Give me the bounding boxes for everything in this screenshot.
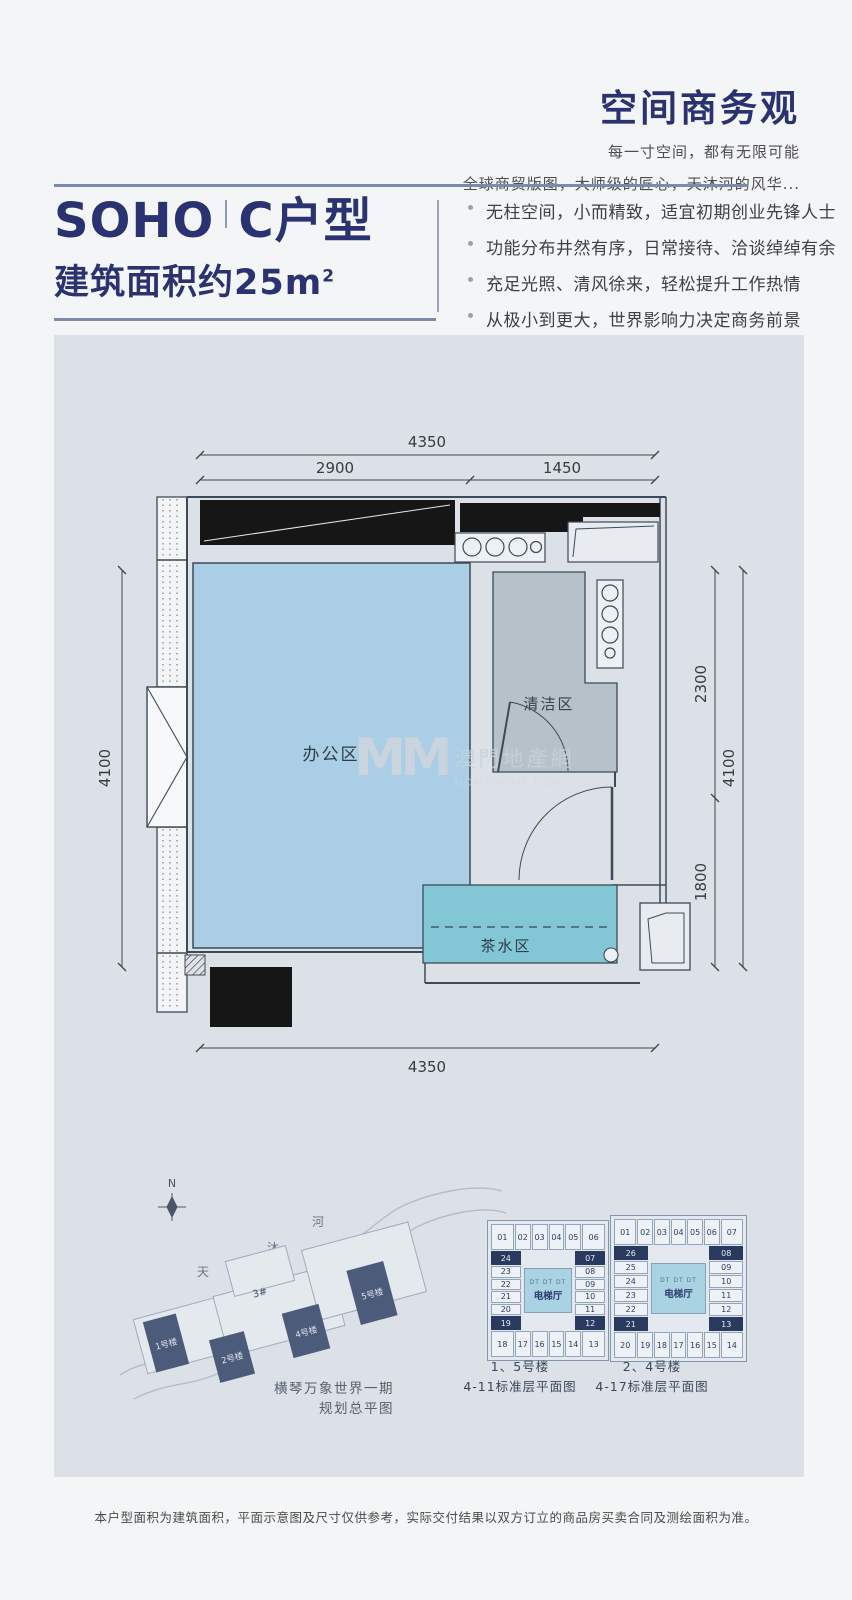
curtain-wall bbox=[147, 497, 187, 1012]
plate-right-column: 09101112 bbox=[709, 1261, 743, 1316]
unit-cell: 23 bbox=[491, 1266, 521, 1278]
unit-cell: 15 bbox=[549, 1331, 565, 1357]
drain-circle-icon bbox=[604, 948, 618, 962]
unit-cell: 20 bbox=[614, 1332, 636, 1358]
dim-bottom-total: 4350 bbox=[408, 1058, 446, 1076]
unit-cell: 11 bbox=[575, 1304, 605, 1316]
unit-cell: 05 bbox=[687, 1219, 703, 1245]
elevator-hall: DT DT DT电梯厅 bbox=[524, 1268, 573, 1313]
bullet-icon bbox=[468, 241, 473, 246]
siteplan-caption-1: 横琴万象世界一期 bbox=[274, 1381, 394, 1397]
unit-cell: 01 bbox=[491, 1224, 514, 1250]
unit-cell: 23 bbox=[614, 1289, 648, 1302]
unit-cell: 17 bbox=[671, 1332, 687, 1358]
plate-lower-corners: 2113 bbox=[614, 1317, 743, 1331]
cleaning-area-label: 清洁区 bbox=[523, 695, 574, 713]
door-swing-entry bbox=[519, 772, 615, 880]
tea-area-label: 茶水区 bbox=[480, 937, 531, 955]
unit-cell: 04 bbox=[549, 1224, 565, 1250]
unit-cell: 08 bbox=[709, 1246, 743, 1260]
unit-cell: 09 bbox=[575, 1279, 605, 1291]
unit-cell: 21 bbox=[614, 1317, 648, 1331]
elevator-hall-label: 电梯厅 bbox=[664, 1286, 693, 1300]
dim-right-total: 4100 bbox=[720, 749, 738, 787]
fixture-column-icon bbox=[597, 580, 623, 668]
plate-right-column: 08091011 bbox=[575, 1266, 605, 1315]
unit-title-cn: C户型 bbox=[238, 196, 372, 246]
unit-cell: 06 bbox=[704, 1219, 720, 1245]
wall-band-top-right bbox=[460, 503, 660, 517]
unit-cell: 10 bbox=[709, 1275, 743, 1288]
unit-cell: 22 bbox=[614, 1303, 648, 1316]
bullet-icon bbox=[468, 205, 473, 210]
header: 空间商务观 每一寸空间，都有无限可能 全球商贸版图，大师级的匠心，天沐河的风华.… bbox=[463, 78, 800, 197]
unit-cell: 02 bbox=[637, 1219, 653, 1245]
unit-cell: 08 bbox=[575, 1266, 605, 1278]
river-char-1: 天 bbox=[197, 1265, 209, 1279]
shaft-block-icon bbox=[640, 903, 690, 970]
unit-cell: 16 bbox=[532, 1331, 548, 1357]
feature-item: 无柱空间，小而精致，适宜初期创业先锋人士 bbox=[468, 198, 836, 223]
office-area-label: 办公区 bbox=[303, 745, 360, 765]
floorplan-panel: 4350 2900 1450 bbox=[54, 335, 804, 1477]
plate-bottom-row: 20191817161514 bbox=[614, 1332, 743, 1358]
unit-cell: 05 bbox=[565, 1224, 581, 1250]
unit-cell: 14 bbox=[565, 1331, 581, 1357]
unit-cell: 26 bbox=[614, 1246, 648, 1260]
unit-cell: 18 bbox=[654, 1332, 670, 1358]
unit-cell: 25 bbox=[614, 1261, 648, 1274]
wall-band-top-right-2 bbox=[460, 517, 583, 532]
unit-cell: 02 bbox=[515, 1224, 531, 1250]
hatched-pier bbox=[185, 955, 205, 975]
unit-cell: 24 bbox=[491, 1251, 521, 1265]
unit-title-en: SOHO bbox=[54, 196, 214, 246]
plate-middle-row: 25242322DT DT DT电梯厅09101112 bbox=[614, 1261, 743, 1316]
unit-cell: 18 bbox=[491, 1331, 514, 1357]
unit-cell: 04 bbox=[671, 1219, 687, 1245]
unit-title: SOHO C户型 bbox=[54, 196, 434, 246]
unit-cell: 15 bbox=[704, 1332, 720, 1358]
unit-cell: 01 bbox=[614, 1219, 636, 1245]
title-underline bbox=[54, 318, 436, 321]
elevator-hall-label: 电梯厅 bbox=[534, 1288, 563, 1302]
unit-area: 建筑面积约25m2 bbox=[54, 254, 434, 305]
plate-middle-row: 23222120DT DT DT电梯厅08091011 bbox=[491, 1266, 605, 1315]
plate-top-row: 01020304050607 bbox=[614, 1219, 743, 1245]
feature-item: 充足光照、清风徐来，轻松提升工作热情 bbox=[468, 270, 836, 295]
cabinet-icon bbox=[568, 522, 658, 562]
unit-cell: 11 bbox=[709, 1289, 743, 1302]
unit-cell: 03 bbox=[654, 1219, 670, 1245]
unit-cell: 24 bbox=[614, 1275, 648, 1288]
dimension-left bbox=[118, 566, 126, 971]
unit-cell: 12 bbox=[575, 1316, 605, 1330]
openable-window-icon bbox=[147, 687, 187, 827]
title-vertical-divider bbox=[437, 200, 439, 312]
dimension-top bbox=[196, 451, 659, 484]
dim-top-total: 4350 bbox=[408, 433, 446, 451]
bullet-icon bbox=[468, 313, 473, 318]
unit-cell: 13 bbox=[582, 1331, 605, 1357]
plate-upper-corners: 2407 bbox=[491, 1251, 605, 1265]
title-tick-divider bbox=[225, 200, 227, 228]
plate-left-column: 25242322 bbox=[614, 1261, 648, 1316]
counter-burners-icon bbox=[455, 533, 545, 562]
plate-left-column: 23222120 bbox=[491, 1266, 521, 1315]
unit-cell: 07 bbox=[575, 1251, 605, 1265]
header-title: 空间商务观 bbox=[463, 78, 800, 132]
plate-upper-corners: 2608 bbox=[614, 1246, 743, 1260]
elevator-hall: DT DT DT电梯厅 bbox=[651, 1263, 707, 1314]
elevator-shaft-label: DT DT DT bbox=[660, 1277, 697, 1284]
siteplan-caption-2: 规划总平图 bbox=[319, 1401, 394, 1417]
dim-top-left: 2900 bbox=[316, 459, 354, 477]
unit-cell: 12 bbox=[709, 1303, 743, 1316]
dim-left: 4100 bbox=[96, 749, 114, 787]
unit-cell: 06 bbox=[582, 1224, 605, 1250]
elevator-shaft-label: DT DT DT bbox=[530, 1279, 567, 1286]
unit-cell: 19 bbox=[491, 1316, 521, 1330]
unit-cell: 14 bbox=[721, 1332, 743, 1358]
unit-cell: 17 bbox=[515, 1331, 531, 1357]
dim-right-upper: 2300 bbox=[692, 665, 710, 703]
unit-cell: 03 bbox=[532, 1224, 548, 1250]
unit-title-block: SOHO C户型 建筑面积约25m2 bbox=[54, 196, 434, 305]
unit-cell: 16 bbox=[687, 1332, 703, 1358]
plate-top-row: 010203040506 bbox=[491, 1224, 605, 1250]
header-subtitle-1: 每一寸空间，都有无限可能 bbox=[463, 141, 800, 164]
river-char-3: 河 bbox=[312, 1215, 324, 1229]
compass-label: N bbox=[168, 1177, 176, 1190]
feature-list: 无柱空间，小而精致，适宜初期创业先锋人士 功能分布井然有序，日常接待、洽谈绰绰有… bbox=[468, 198, 836, 342]
unit-cell: 07 bbox=[721, 1219, 743, 1245]
plate-bottom-row: 181716151413 bbox=[491, 1331, 605, 1357]
dimension-bottom bbox=[196, 1044, 659, 1052]
unit-cell: 13 bbox=[709, 1317, 743, 1331]
poster-page: 空间商务观 每一寸空间，都有无限可能 全球商贸版图，大师级的匠心，天沐河的风华.… bbox=[0, 0, 852, 1600]
dim-right-lower: 1800 bbox=[692, 863, 710, 901]
dim-top-right: 1450 bbox=[543, 459, 581, 477]
area-superscript: 2 bbox=[322, 267, 335, 287]
floor-plate-diagram-1: 010203040506240723222120DT DT DT电梯厅08091… bbox=[487, 1220, 609, 1361]
unit-cell: 09 bbox=[709, 1261, 743, 1274]
unit-cell: 10 bbox=[575, 1291, 605, 1303]
feature-item: 从极小到更大，世界影响力决定商务前景 bbox=[468, 306, 836, 331]
compass-icon bbox=[158, 1193, 186, 1221]
feature-item: 功能分布井然有序，日常接待、洽谈绰绰有余 bbox=[468, 234, 836, 259]
plate-lower-corners: 1912 bbox=[491, 1316, 605, 1330]
plate-caption-2: 2、4号楼 4-17标准层平面图 bbox=[567, 1357, 737, 1397]
unit-cell: 20 bbox=[491, 1304, 521, 1316]
disclaimer: 本户型面积为建筑面积，平面示意图及尺寸仅供参考，实际交付结果以双方订立的商品房买… bbox=[0, 1507, 852, 1526]
unit-cell: 19 bbox=[637, 1332, 653, 1358]
column-block bbox=[210, 967, 292, 1027]
bullet-icon bbox=[468, 277, 473, 282]
unit-cell: 21 bbox=[491, 1291, 521, 1303]
unit-cell: 22 bbox=[491, 1279, 521, 1291]
header-divider-line bbox=[54, 184, 748, 187]
floor-plate-diagram-2: 01020304050607260825242322DT DT DT电梯厅091… bbox=[610, 1215, 747, 1362]
